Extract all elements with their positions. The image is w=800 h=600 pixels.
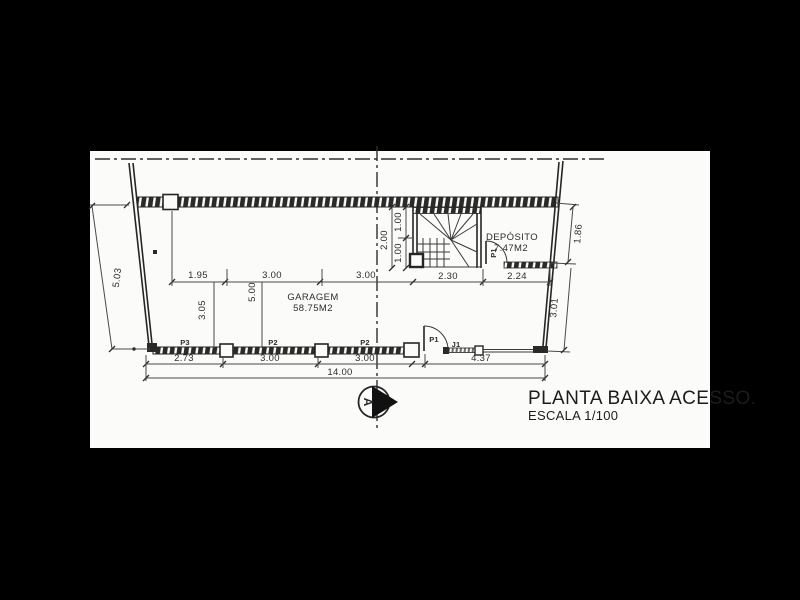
- left-wall: [129, 163, 157, 352]
- dim-1-95: 1.95: [188, 270, 208, 281]
- section-marker-a: A: [359, 386, 399, 418]
- right-wall: [533, 161, 563, 353]
- dim-3-01: 3.01: [548, 297, 561, 318]
- column: [315, 344, 328, 357]
- opening-label-p3: P3: [180, 338, 190, 347]
- staircase: [410, 206, 481, 268]
- column: [220, 344, 233, 357]
- deposito-room: P1 DEPÓSITO 7.47M2: [486, 232, 557, 268]
- dim-2-30: 2.30: [438, 271, 458, 282]
- dim-2-00: 2.00: [379, 230, 390, 250]
- drawing-title: PLANTA BAIXA ACESSO.: [528, 388, 756, 409]
- title-block: PLANTA BAIXA ACESSO. ESCALA 1/100: [528, 388, 756, 423]
- dim-4-37: 4.37: [471, 353, 491, 364]
- top-wall: [138, 195, 558, 210]
- room-name-deposito: DEPÓSITO: [486, 232, 538, 243]
- window-label-j1: J1: [452, 340, 461, 349]
- floor-plan-drawing: P1 DEPÓSITO 7.47M2 GARAGEM 58.75M2 P3 P2…: [0, 0, 800, 600]
- window-j1: [449, 346, 533, 355]
- door-label-p1-garage: P1: [429, 335, 439, 344]
- dim-1-00-a: 1.00: [393, 212, 404, 232]
- dimension-stair: 2.00 1.00 1.00: [379, 204, 413, 271]
- dim-3-05: 3.05: [197, 300, 208, 320]
- dim-3-00-c: 3.00: [260, 353, 280, 364]
- dim-3-00-a: 3.00: [262, 270, 282, 281]
- room-area-deposito: 7.47M2: [494, 243, 528, 254]
- column: [404, 343, 419, 357]
- room-area-garagem: 58.75M2: [293, 303, 333, 314]
- stair-column: [410, 254, 423, 267]
- dim-14-00: 14.00: [327, 367, 352, 378]
- garage-room: GARAGEM 58.75M2: [287, 292, 338, 314]
- dim-1-00-b: 1.00: [393, 243, 404, 263]
- dim-2-24: 2.24: [507, 271, 527, 282]
- dim-5-00: 5.00: [247, 282, 258, 302]
- section-letter: A: [361, 398, 375, 407]
- dim-5-03: 5.03: [111, 267, 124, 288]
- opening-label-p2b: P2: [360, 338, 370, 347]
- dim-3-00-b: 3.00: [356, 270, 376, 281]
- dimension-depths: 3.05 5.00: [197, 282, 262, 348]
- dim-1-86: 1.86: [572, 223, 585, 244]
- dimension-row-bottom: 2.73 3.00 3.00 4.37 14.00: [143, 353, 548, 381]
- room-name-garagem: GARAGEM: [287, 292, 338, 303]
- opening-label-p2a: P2: [268, 338, 278, 347]
- dim-3-00-d: 3.00: [355, 353, 375, 364]
- column: [163, 195, 178, 210]
- scan-speck: [153, 250, 157, 254]
- drawing-scale: ESCALA 1/100: [528, 408, 618, 423]
- dim-2-73: 2.73: [174, 353, 194, 364]
- scanned-floor-plan-page: P1 DEPÓSITO 7.47M2 GARAGEM 58.75M2 P3 P2…: [0, 0, 800, 600]
